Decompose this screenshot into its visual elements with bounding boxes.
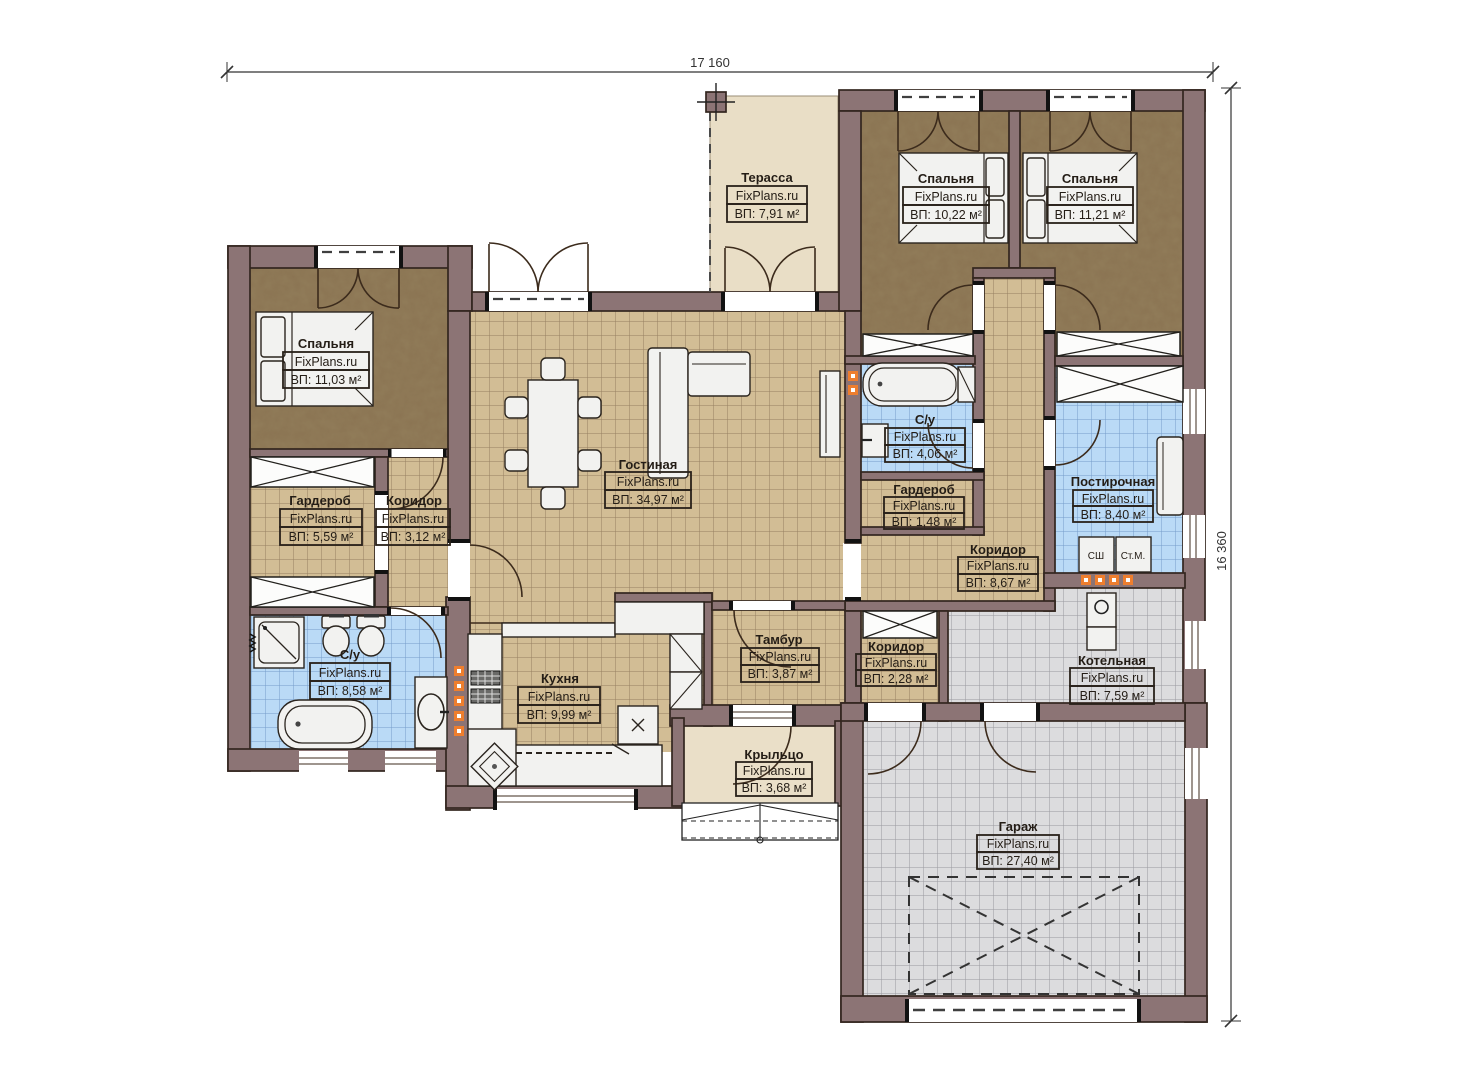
svg-text:ВП: 27,40 м²: ВП: 27,40 м² bbox=[982, 854, 1054, 868]
svg-text:ВП: 8,67 м²: ВП: 8,67 м² bbox=[966, 576, 1031, 590]
svg-text:FixPlans.ru: FixPlans.ru bbox=[1059, 190, 1122, 204]
svg-text:С/у: С/у bbox=[340, 647, 361, 662]
svg-text:Крыльцо: Крыльцо bbox=[744, 747, 803, 762]
svg-text:ВП: 7,59 м²: ВП: 7,59 м² bbox=[1080, 689, 1145, 703]
svg-text:FixPlans.ru: FixPlans.ru bbox=[743, 764, 806, 778]
svg-text:FixPlans.ru: FixPlans.ru bbox=[528, 690, 591, 704]
svg-text:FixPlans.ru: FixPlans.ru bbox=[893, 499, 956, 513]
svg-text:Гардероб: Гардероб bbox=[893, 482, 954, 497]
svg-text:СШ: СШ bbox=[1088, 551, 1104, 562]
svg-text:ВП: 5,59 м²: ВП: 5,59 м² bbox=[289, 530, 354, 544]
svg-text:ВП: 11,21 м²: ВП: 11,21 м² bbox=[1055, 208, 1126, 222]
svg-text:FixPlans.ru: FixPlans.ru bbox=[749, 650, 812, 664]
svg-text:FixPlans.ru: FixPlans.ru bbox=[290, 512, 353, 526]
svg-text:Коридор: Коридор bbox=[868, 639, 924, 654]
svg-text:FixPlans.ru: FixPlans.ru bbox=[382, 512, 445, 526]
svg-text:17 160: 17 160 bbox=[690, 55, 730, 70]
svg-text:Котельная: Котельная bbox=[1078, 653, 1146, 668]
svg-text:Гараж: Гараж bbox=[999, 819, 1039, 834]
svg-text:FixPlans.ru: FixPlans.ru bbox=[987, 837, 1050, 851]
svg-text:Спальня: Спальня bbox=[1062, 171, 1118, 186]
svg-text:Постирочная: Постирочная bbox=[1071, 474, 1155, 489]
svg-text:Спальня: Спальня bbox=[918, 171, 974, 186]
svg-text:FixPlans.ru: FixPlans.ru bbox=[894, 430, 957, 444]
svg-text:16 360: 16 360 bbox=[1214, 531, 1229, 571]
svg-text:Кухня: Кухня bbox=[541, 671, 579, 686]
svg-text:ВП: 11,03 м²: ВП: 11,03 м² bbox=[291, 373, 362, 387]
svg-text:Ст.М.: Ст.М. bbox=[1121, 551, 1146, 562]
svg-text:Коридор: Коридор bbox=[970, 542, 1026, 557]
svg-text:ВП: 10,22 м²: ВП: 10,22 м² bbox=[910, 208, 982, 222]
svg-text:ВП: 3,12 м²: ВП: 3,12 м² bbox=[381, 530, 446, 544]
svg-text:ВП: 8,40 м²: ВП: 8,40 м² bbox=[1081, 508, 1146, 522]
svg-text:ВП: 3,87 м²: ВП: 3,87 м² bbox=[748, 667, 813, 681]
svg-text:Тамбур: Тамбур bbox=[755, 632, 802, 647]
svg-text:Гардероб: Гардероб bbox=[289, 493, 350, 508]
svg-text:Спальня: Спальня bbox=[298, 336, 354, 351]
svg-text:FixPlans.ru: FixPlans.ru bbox=[295, 355, 358, 369]
svg-text:ВП: 7,91 м²: ВП: 7,91 м² bbox=[735, 207, 800, 221]
svg-text:Коридор: Коридор bbox=[386, 493, 442, 508]
svg-text:FixPlans.ru: FixPlans.ru bbox=[319, 666, 382, 680]
svg-text:ВП: 3,68 м²: ВП: 3,68 м² bbox=[742, 781, 807, 795]
svg-text:ВП: 4,06 м²: ВП: 4,06 м² bbox=[893, 447, 958, 461]
svg-text:FixPlans.ru: FixPlans.ru bbox=[967, 559, 1030, 573]
svg-text:ВП: 9,99 м²: ВП: 9,99 м² bbox=[527, 708, 592, 722]
svg-text:FixPlans.ru: FixPlans.ru bbox=[865, 656, 928, 670]
svg-text:ВП: 2,28 м²: ВП: 2,28 м² bbox=[864, 672, 929, 686]
svg-text:ВП: 1,48 м²: ВП: 1,48 м² bbox=[892, 515, 957, 529]
svg-text:FixPlans.ru: FixPlans.ru bbox=[915, 190, 978, 204]
svg-text:Терасса: Терасса bbox=[741, 170, 793, 185]
svg-text:ВП: 34,97 м²: ВП: 34,97 м² bbox=[612, 493, 684, 507]
svg-text:FixPlans.ru: FixPlans.ru bbox=[1081, 671, 1144, 685]
svg-text:FixPlans.ru: FixPlans.ru bbox=[1082, 492, 1145, 506]
svg-text:Гостиная: Гостиная bbox=[619, 457, 678, 472]
svg-text:С/у: С/у bbox=[915, 412, 936, 427]
svg-text:FixPlans.ru: FixPlans.ru bbox=[736, 189, 799, 203]
svg-text:FixPlans.ru: FixPlans.ru bbox=[617, 475, 680, 489]
svg-text:ВП: 8,58 м²: ВП: 8,58 м² bbox=[318, 684, 383, 698]
